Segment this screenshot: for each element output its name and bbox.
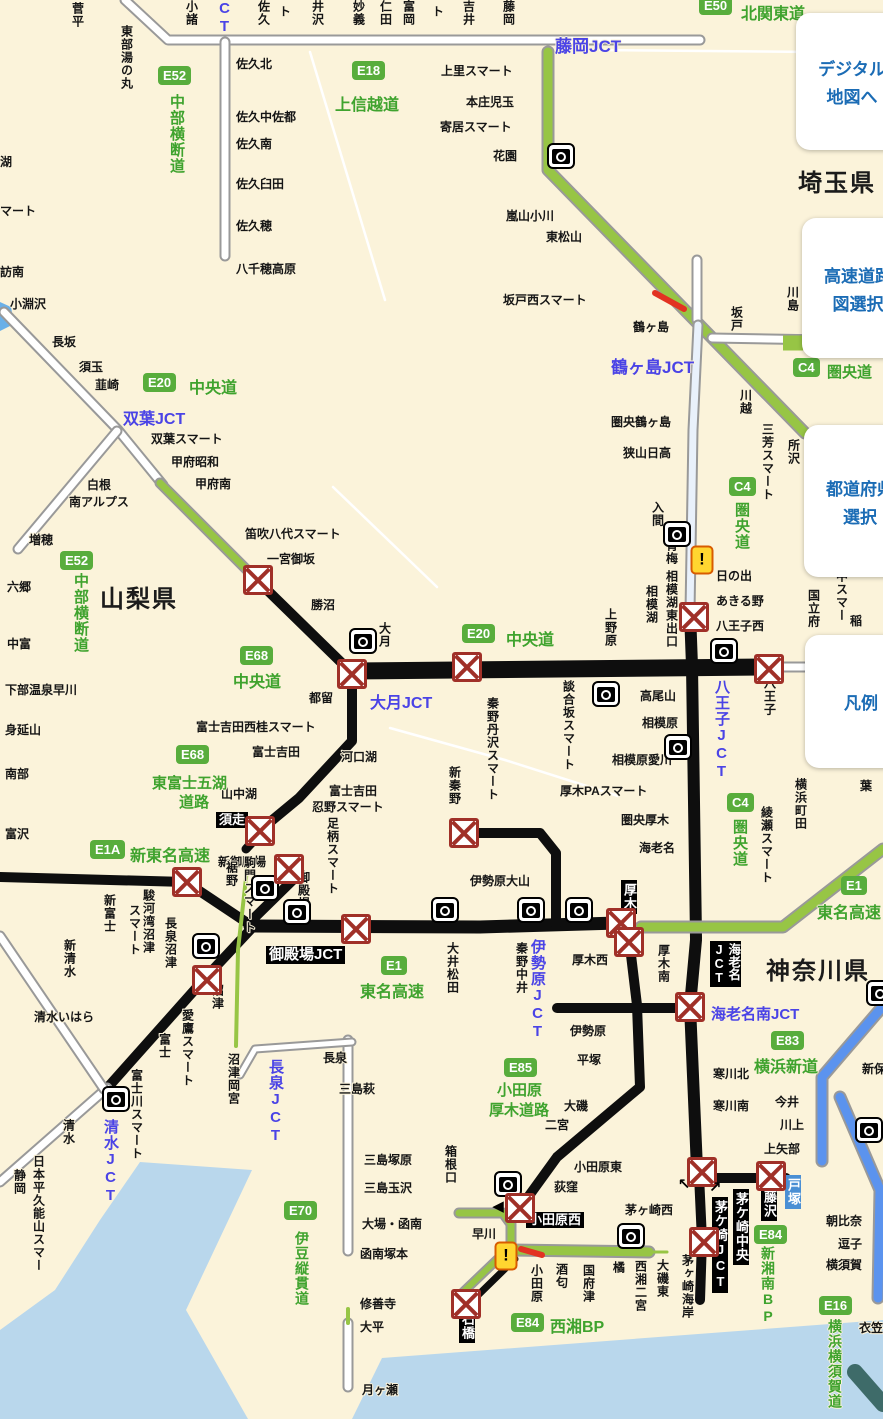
panel-route-map-select-label: 図選択	[833, 290, 883, 315]
camera-icon[interactable]	[710, 638, 738, 664]
road-network-layer	[0, 0, 883, 1419]
ic-label: 中富	[7, 638, 31, 651]
route-name: 伊豆縦貫道	[292, 1231, 312, 1306]
detour-label: 戸塚	[785, 1175, 801, 1209]
route-name: 中央道	[233, 668, 281, 692]
camera-icon[interactable]	[283, 899, 311, 925]
ic-label: 稲	[850, 615, 862, 628]
ic-label: あきる野	[716, 595, 764, 608]
road-closed-icon	[675, 992, 705, 1022]
ic-label: 相模湖東出口	[664, 570, 677, 648]
ic-label: 三島塚原	[364, 1154, 412, 1167]
ic-label: 河口湖	[341, 751, 377, 764]
panel-digital-map-label: 地図へ	[827, 83, 878, 108]
ic-label: 湖	[0, 156, 12, 169]
ic-label: 富士	[157, 1033, 170, 1059]
road-closed-icon	[243, 565, 273, 595]
ic-label: ト	[430, 5, 443, 18]
route-badge: C4	[729, 477, 756, 496]
route-name: 東名高速	[360, 978, 424, 1002]
camera-icon[interactable]	[192, 933, 220, 959]
ic-label: 甲府昭和	[171, 456, 219, 469]
panel-digital-map-label: デジタル	[818, 55, 883, 80]
ic-label: 富士吉田西桂スマート	[196, 721, 316, 734]
ic-label: 寄居スマート	[440, 121, 512, 134]
ic-label: 海老名	[639, 842, 675, 855]
junction-label: 鶴ヶ島JCT	[611, 353, 694, 378]
ic-label: 花園	[493, 150, 517, 163]
ic-label: スマート	[127, 904, 140, 956]
traffic-map-canvas: 菅平東部湯の丸小諸佐久ト井沢妙義仁田富岡ト吉井藤岡湖マート訪南佐久北佐久中佐都佐…	[0, 0, 883, 1419]
ic-label: 裾野	[224, 861, 237, 887]
junction-label: 伊勢原JCT	[527, 939, 548, 1041]
ic-label: 須玉	[79, 361, 103, 374]
panel-digital-map[interactable]: デジタル地図へ	[796, 13, 883, 150]
panel-prefecture-select[interactable]: 都道府県選択	[804, 425, 883, 577]
ic-label: 川越	[738, 389, 751, 415]
road-shintomei-west	[0, 877, 249, 924]
ic-label: 南部	[5, 768, 29, 781]
ic-label: 小諸	[184, 0, 197, 26]
road-closed-icon	[452, 652, 482, 682]
route-badge: E85	[504, 1058, 537, 1077]
route-name: 上信越道	[335, 91, 399, 115]
ic-label: 秦野中井	[514, 942, 527, 994]
ic-label: 伊勢原	[570, 1025, 606, 1038]
ic-label: 相模原愛川	[612, 754, 672, 767]
camera-icon[interactable]	[349, 628, 377, 654]
ic-label: 川島	[785, 286, 798, 312]
ic-label: 圏央鶴ヶ島	[611, 416, 671, 429]
ic-label: 吉井	[461, 0, 474, 26]
route-name: 横浜新道	[754, 1053, 818, 1077]
ic-label: 富士吉田	[252, 746, 300, 759]
route-badge: C4	[727, 793, 754, 812]
ic-label: 韮崎	[95, 379, 119, 392]
ic-marker	[783, 336, 803, 351]
camera-icon[interactable]	[592, 681, 620, 707]
ic-label: 菅平	[70, 2, 83, 28]
camera-icon[interactable]	[102, 1086, 130, 1112]
junction-label: 八王子JCT	[711, 679, 732, 781]
camera-icon[interactable]	[866, 980, 883, 1006]
camera-icon[interactable]	[431, 897, 459, 923]
ic-label: 東部湯の丸	[119, 25, 132, 90]
camera-icon[interactable]	[855, 1117, 883, 1143]
closed-section-label: 藤沢	[761, 1187, 777, 1221]
ic-label: 妙義	[351, 0, 364, 26]
route-name: 横浜横須賀道	[825, 1319, 845, 1409]
ic-label: 富士川スマート	[129, 1069, 142, 1160]
route-name: 厚木道路	[489, 1099, 549, 1120]
route-name: 中部横断道	[70, 573, 91, 653]
ic-label: 一宮御坂	[267, 553, 315, 566]
ic-label: 圏央厚木	[621, 814, 669, 827]
ic-label: 修善寺	[360, 1298, 396, 1311]
closed-section-label-col: 海老名	[726, 943, 739, 985]
route-name: 中部横断道	[166, 94, 187, 174]
ic-label: 佐久南	[236, 138, 272, 151]
ic-label: 朝比奈	[826, 1215, 862, 1228]
road-closed-icon	[192, 965, 222, 995]
ic-label: 足柄スマート	[325, 817, 338, 895]
panel-legend[interactable]: 凡例	[805, 635, 883, 768]
ic-label: 井沢	[310, 0, 323, 26]
ic-label: 藤岡	[501, 0, 514, 26]
route-badge: E68	[176, 745, 209, 764]
junction-label: 大月JCT	[370, 689, 432, 713]
ic-label: 早川	[472, 1228, 496, 1241]
ic-label: 長泉	[323, 1052, 347, 1065]
road-pref-border-3	[310, 52, 385, 300]
ic-label: 所沢	[786, 439, 799, 465]
road-closed-icon	[245, 816, 275, 846]
ic-label: 嵐山小川	[506, 210, 554, 223]
ic-label: 荻窪	[554, 1181, 578, 1194]
ic-label: 三島玉沢	[364, 1182, 412, 1195]
sea-area	[352, 1320, 883, 1419]
ic-label: 川上	[780, 1119, 804, 1132]
ic-label: 小田原東	[574, 1161, 622, 1174]
direction-arrow-icon: ◀	[492, 1197, 504, 1215]
ic-label: 酒匂	[554, 1263, 567, 1289]
road-closed-icon	[172, 867, 202, 897]
road-closed-icon	[337, 659, 367, 689]
ic-label: 三芳スマート	[760, 423, 773, 501]
route-name: 新東名高速	[130, 842, 210, 866]
ic-label: 増穂	[29, 534, 53, 547]
ic-label: 相模原	[642, 717, 678, 730]
ic-label: 佐久	[256, 0, 269, 26]
ic-label: 勝沼	[311, 599, 335, 612]
junction-label: 清水JCT	[100, 1119, 121, 1205]
ic-label: 長泉沼津	[163, 917, 176, 969]
ic-label: 日本平久能山スマー	[31, 1155, 44, 1272]
camera-icon[interactable]	[664, 734, 692, 760]
ic-label: 寒川南	[713, 1100, 749, 1113]
ic-label: 逗子	[838, 1238, 862, 1251]
route-name: 圏央道	[729, 819, 750, 867]
ic-label: 大月	[377, 622, 390, 648]
road-tomei-sw-open	[0, 1088, 107, 1182]
ic-label: 富岡	[401, 0, 414, 26]
route-badge: E68	[240, 646, 273, 665]
road-closed-icon	[274, 854, 304, 884]
route-badge: E20	[462, 624, 495, 643]
prefecture-label: 埼玉県	[798, 163, 876, 198]
ic-label: 佐久穂	[236, 220, 272, 233]
ic-label: ト	[277, 5, 290, 18]
junction-label: 長泉JCT	[265, 1059, 286, 1145]
route-name: 中央道	[506, 626, 554, 650]
junction-label: CT	[216, 0, 233, 36]
junction-label: 海老名南JCT	[711, 1003, 799, 1024]
route-name: 圏央道	[731, 502, 752, 550]
route-name: 道路	[179, 791, 209, 812]
ic-label: 大磯	[564, 1100, 588, 1113]
ic-label: 忍野スマート	[312, 801, 384, 814]
ic-label: 綾瀬スマート	[759, 806, 772, 884]
ic-label: 橘	[611, 1261, 624, 1274]
ic-label: 富沢	[5, 828, 29, 841]
ic-label: 茅ヶ崎西	[625, 1204, 673, 1217]
road-closed-icon	[451, 1289, 481, 1319]
road-keno-south-closed	[690, 940, 697, 1169]
route-badge: E1A	[90, 840, 125, 859]
road-e20-west-closed	[261, 584, 350, 671]
ic-label: 新清水	[62, 939, 75, 978]
route-name: 小田原	[497, 1079, 542, 1100]
route-badge: E83	[771, 1031, 804, 1050]
ic-label: 三島萩	[339, 1083, 375, 1096]
route-name: 新湘南BP	[758, 1246, 778, 1325]
direction-arrow-icon: ↗	[709, 1178, 722, 1196]
ic-label: 国立府	[806, 589, 819, 628]
ic-label: 仁田	[378, 0, 391, 26]
ic-label: 長坂	[52, 336, 76, 349]
camera-icon[interactable]	[617, 1223, 645, 1249]
ic-label: 小淵沢	[10, 298, 46, 311]
ic-label: 小田原	[529, 1264, 542, 1303]
ic-label: 葉	[860, 780, 872, 793]
camera-icon[interactable]	[517, 897, 545, 923]
route-badge: C4	[793, 358, 820, 377]
ic-label: 大平	[360, 1321, 384, 1334]
ic-label: 訪南	[0, 266, 24, 279]
ic-label: 二宮	[545, 1119, 569, 1132]
ic-label: 鶴ヶ島	[633, 321, 669, 334]
panel-legend-label: 凡例	[844, 689, 878, 714]
ic-label: 大磯東	[655, 1259, 668, 1298]
ic-label: 衣笠	[859, 1322, 883, 1335]
route-badge: E52	[60, 551, 93, 570]
route-name: 東名高速	[817, 899, 881, 923]
route-badge: E84	[511, 1313, 544, 1332]
camera-icon[interactable]	[663, 521, 691, 547]
ic-label: 大井松田	[445, 942, 458, 994]
road-closed-icon	[449, 818, 479, 848]
ic-label: 静岡	[12, 1169, 25, 1195]
ic-label: 白根	[87, 479, 111, 492]
ic-label: 国府津	[581, 1264, 594, 1303]
ic-label: 大場・函南	[362, 1218, 422, 1231]
ic-label: 沼津岡宮	[226, 1053, 239, 1105]
ic-label: 甲府南	[195, 478, 231, 491]
panel-prefecture-select-label: 都道府県	[826, 475, 883, 500]
road-e20-chuo-closed	[350, 667, 768, 671]
route-badge: E52	[158, 66, 191, 85]
ic-label: 八千穂高原	[236, 263, 296, 276]
route-name: 中央道	[189, 374, 237, 398]
road-closed-icon	[679, 602, 709, 632]
ic-label: 高尾山	[640, 690, 676, 703]
ic-label: 新富士	[102, 894, 115, 933]
ic-label: 厚木PAスマート	[560, 785, 647, 798]
route-badge: E16	[819, 1296, 852, 1315]
warning-icon: !	[495, 1242, 518, 1271]
route-badge: E50	[699, 0, 732, 15]
ic-label: 駿河湾沼津	[141, 889, 154, 954]
panel-route-map-select[interactable]: 高速道路図選択	[802, 218, 883, 358]
route-badge: E70	[284, 1201, 317, 1220]
route-name: 北関東道	[741, 0, 805, 24]
panel-route-map-select-label: 高速道路	[824, 262, 883, 287]
ic-label: 上野原	[603, 608, 616, 647]
ic-label: 愛鷹スマート	[180, 1009, 193, 1087]
route-name: 東富士五湖	[152, 772, 227, 793]
ic-label: 身延山	[5, 724, 41, 737]
ic-label: 函南塚本	[360, 1248, 408, 1261]
ic-label: 入間	[650, 501, 663, 527]
ic-label: 平塚	[577, 1054, 601, 1067]
ic-label: 厚木南	[656, 944, 669, 983]
ic-label: 月ヶ瀬	[362, 1384, 398, 1397]
ic-label: 清水	[61, 1119, 74, 1145]
road-closed-icon	[341, 914, 371, 944]
ic-label: 南アルプス	[69, 496, 129, 509]
ic-label: 八王子西	[716, 620, 764, 633]
ic-label: 上里スマート	[441, 65, 513, 78]
ic-label: 伊勢原大山	[470, 875, 530, 888]
route-name: 西湘BP	[550, 1313, 604, 1337]
route-badge: E20	[143, 373, 176, 392]
ic-label: 新秦野	[447, 766, 460, 805]
ic-label: 佐久中佐都	[236, 111, 296, 124]
road-pref-border-4	[600, 50, 815, 52]
prefecture-label: 神奈川県	[766, 951, 870, 986]
ic-label: 寒川北	[713, 1068, 749, 1081]
closed-section-label: 茅ケ崎中央	[733, 1189, 749, 1265]
road-e20-west-open	[4, 312, 163, 485]
ic-label: 上矢部	[764, 1143, 800, 1156]
ic-label: 秦野丹沢スマート	[485, 697, 498, 801]
ic-label: マート	[0, 205, 36, 218]
ic-label: 清水いはら	[34, 1011, 94, 1024]
ic-label: 東松山	[546, 231, 582, 244]
road-pref-border-1	[333, 487, 437, 587]
ic-label: 笛吹八代スマート	[245, 528, 341, 541]
ic-label: 箱根口	[443, 1145, 456, 1184]
ic-label: 双葉スマート	[151, 433, 223, 446]
ic-label: 相模湖	[644, 585, 657, 624]
junction-label: 双葉JCT	[123, 405, 185, 429]
ic-label: 狭山日高	[623, 447, 671, 460]
panel-prefecture-select-label: 選択	[843, 503, 877, 528]
junction-label: 藤岡JCT	[555, 32, 621, 57]
ic-label: 西湘二宮	[633, 1260, 646, 1312]
ic-label: 本庄児玉	[466, 96, 514, 109]
road-closed-icon	[505, 1193, 535, 1223]
ic-label: 厚木西	[572, 954, 608, 967]
closed-section-label: 須走	[216, 812, 248, 828]
ic-label: 坂戸	[729, 306, 742, 332]
road-closed-icon	[689, 1227, 719, 1257]
camera-icon[interactable]	[565, 897, 593, 923]
warning-icon: !	[691, 546, 714, 575]
road-closed-icon	[614, 927, 644, 957]
road-closed-icon	[756, 1161, 786, 1191]
route-badge: E1	[381, 956, 407, 975]
ic-label: 佐久北	[236, 58, 272, 71]
ic-label: 都留	[309, 692, 333, 705]
closed-section-label: JCT海老名	[710, 941, 741, 987]
direction-arrow-icon: ↖	[678, 1175, 691, 1193]
camera-icon[interactable]	[547, 143, 575, 169]
route-badge: E18	[352, 61, 385, 80]
ic-label: 坂戸西スマート	[503, 294, 587, 307]
road-e20-west-green	[160, 483, 254, 577]
ic-label: 佐久臼田	[236, 178, 284, 191]
route-badge: E84	[754, 1225, 787, 1244]
road-closed-icon	[754, 654, 784, 684]
closed-section-label: 御殿場JCT	[266, 946, 345, 964]
ic-label: 横浜町田	[793, 778, 806, 830]
ic-label: 横須賀	[826, 1259, 862, 1272]
ic-label: 日の出	[716, 570, 752, 583]
ic-label: 茅ヶ崎海岸	[680, 1254, 693, 1319]
route-name: 圏央道	[827, 361, 872, 382]
ic-label: 富士吉田	[329, 785, 377, 798]
prefecture-label: 山梨県	[100, 579, 178, 614]
ic-label: 中スマー	[834, 570, 847, 622]
ic-label: 今井	[775, 1096, 799, 1109]
ic-label: 新保	[862, 1063, 883, 1076]
ic-label: 下部温泉早川	[5, 684, 77, 697]
route-badge: E1	[841, 876, 867, 895]
ic-label: 六郷	[7, 581, 31, 594]
ic-label: 談合坂スマート	[561, 680, 574, 771]
closed-section-label-col: JCT	[712, 943, 725, 985]
